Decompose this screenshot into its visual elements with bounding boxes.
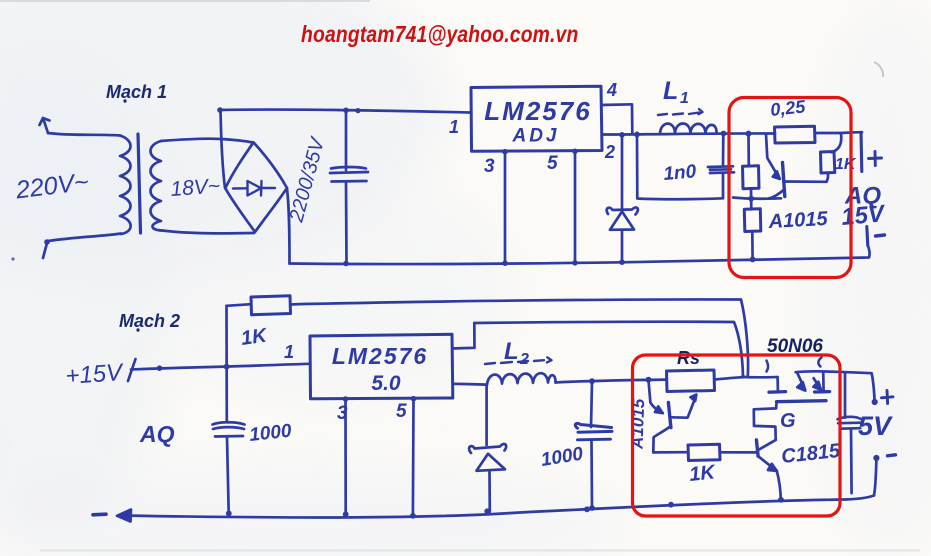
svg-text:1n0: 1n0 — [663, 161, 698, 185]
svg-text:LM2576: LM2576 — [484, 96, 591, 126]
svg-text:AQ: AQ — [139, 421, 175, 447]
svg-text:2: 2 — [519, 351, 529, 368]
svg-text:3: 3 — [484, 156, 495, 177]
svg-text:Rs: Rs — [677, 348, 700, 368]
svg-text:L: L — [663, 77, 678, 105]
svg-text:3: 3 — [337, 403, 348, 424]
svg-text:1: 1 — [449, 117, 459, 137]
svg-text:G: G — [780, 410, 796, 432]
svg-text:1: 1 — [284, 342, 294, 362]
svg-text:A1015: A1015 — [627, 398, 648, 450]
svg-text:LM2576: LM2576 — [332, 343, 428, 369]
svg-text:1K: 1K — [688, 461, 717, 486]
svg-text:1: 1 — [680, 90, 689, 107]
svg-text:2: 2 — [604, 142, 615, 162]
svg-text:5: 5 — [396, 401, 407, 422]
svg-text:ADJ: ADJ — [511, 126, 559, 147]
svg-text:hoangtam741@yahoo.com.vn: hoangtam741@yahoo.com.vn — [301, 21, 578, 47]
svg-text:1K: 1K — [240, 324, 270, 350]
svg-text:+15V: +15V — [65, 359, 125, 390]
svg-text:15V: 15V — [840, 200, 887, 231]
svg-text:0,25: 0,25 — [769, 96, 807, 120]
svg-text:4: 4 — [606, 80, 617, 100]
svg-text:5.0: 5.0 — [371, 372, 401, 395]
svg-text:5V: 5V — [858, 411, 893, 441]
svg-text:1000: 1000 — [248, 421, 293, 446]
svg-text:A1015: A1015 — [767, 208, 829, 233]
svg-text:18V~: 18V~ — [170, 175, 221, 201]
svg-text:5: 5 — [547, 153, 558, 174]
svg-text:Mach 1: Mach 1 — [106, 82, 167, 102]
svg-text:1K: 1K — [835, 156, 857, 173]
svg-text:Mach 2: Mach 2 — [119, 311, 180, 331]
